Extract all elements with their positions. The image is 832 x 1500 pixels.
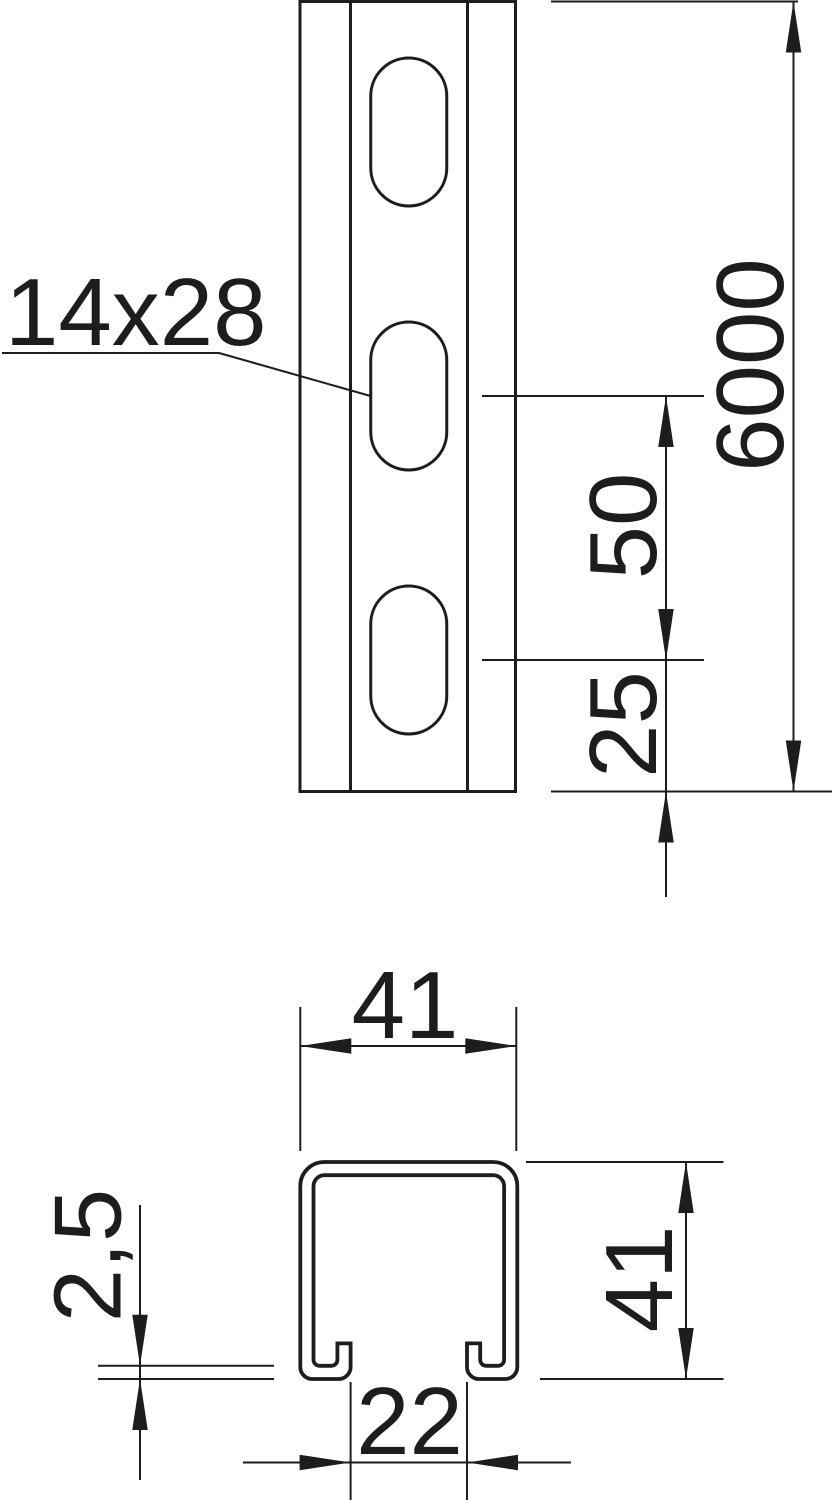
svg-text:14x28: 14x28 — [5, 259, 267, 366]
svg-text:2,5: 2,5 — [35, 1189, 142, 1322]
svg-text:25: 25 — [570, 671, 677, 778]
svg-text:41: 41 — [586, 1226, 693, 1333]
svg-text:50: 50 — [570, 473, 677, 580]
svg-text:22: 22 — [356, 1368, 463, 1475]
svg-text:41: 41 — [352, 952, 459, 1059]
svg-text:6000: 6000 — [697, 258, 804, 472]
